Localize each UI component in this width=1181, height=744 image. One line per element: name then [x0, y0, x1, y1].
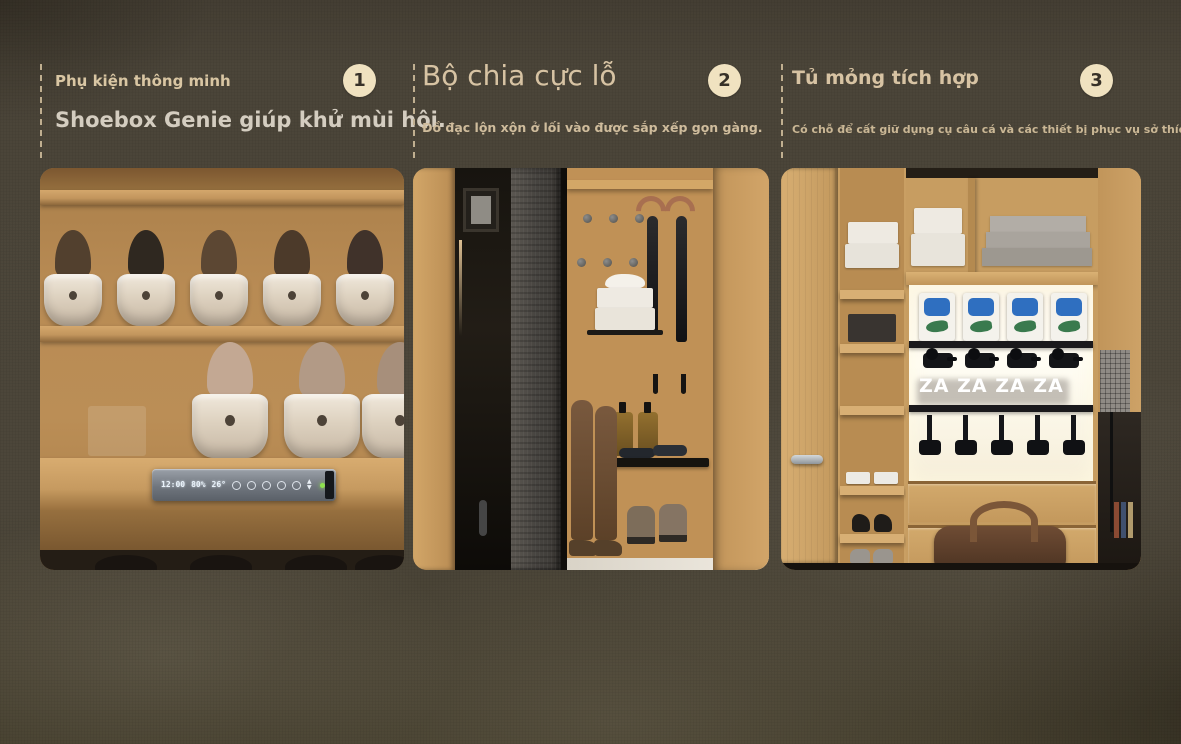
sneaker: [873, 549, 893, 563]
deodorizer-dome: [192, 394, 268, 458]
fishing-lure-box: [1051, 293, 1087, 341]
tool: [653, 445, 687, 456]
peg: [577, 258, 586, 267]
fishing-rod: [1110, 412, 1113, 532]
deodorizer-dome: [284, 394, 360, 458]
white-box: [595, 308, 655, 330]
rack-shelf: [840, 290, 904, 299]
deodorizer-dome: [117, 274, 175, 326]
dark-side-panel: [1098, 412, 1141, 563]
shelf-board: [906, 272, 1098, 285]
feature-1-number-badge: 1: [343, 64, 376, 97]
shelf-board: [40, 190, 404, 205]
white-box: [848, 222, 898, 244]
folded-slipper: [874, 472, 898, 484]
shoe: [128, 230, 164, 278]
peg: [609, 214, 618, 223]
za-overlay-text: ZA ZA ZA ZA: [919, 375, 1064, 397]
black-shelf: [909, 405, 1093, 412]
deodorizer-dome: [336, 274, 394, 326]
right-door-panel: [713, 168, 769, 570]
mode-icon: [277, 481, 286, 490]
vent-hole: [225, 415, 235, 426]
cabinet-door: [781, 168, 838, 563]
peg: [629, 258, 638, 267]
white-box: [914, 208, 962, 234]
feature-3-title: Tủ mỏng tích hợp: [792, 67, 979, 89]
cabinet-top-shadow: [40, 168, 404, 190]
fishing-reel-standing: [1025, 413, 1051, 455]
gray-sliding-panel: [511, 168, 561, 570]
gray-box: [982, 248, 1092, 266]
pegboard-closet-interior: [567, 168, 713, 558]
shoe: [55, 230, 91, 278]
arrow-buttons-icon: ▲ ▼: [307, 479, 314, 491]
feature-3-number-badge: 3: [1080, 64, 1113, 97]
bracket-shelf: [587, 330, 663, 335]
dashed-divider: [781, 64, 783, 162]
deodorizer-dome: [190, 274, 248, 326]
vent-hole: [361, 291, 369, 300]
deodorizer-dome: [44, 274, 102, 326]
photo-entry-closet-organizer: [413, 168, 769, 570]
feature-2-number-badge: 2: [708, 64, 741, 97]
tool: [619, 448, 655, 458]
promo-graphic: Phụ kiện thông minh 1 Shoebox Genie giúp…: [0, 0, 1181, 744]
shoe: [201, 230, 237, 278]
mode-icon: [232, 481, 241, 490]
photo-slim-hobby-cabinet: ZA ZA ZA ZA: [781, 168, 1141, 570]
vent-hole: [288, 291, 296, 300]
fishing-reel: [1007, 353, 1037, 368]
black-shelf: [909, 341, 1093, 348]
rack-shelf: [840, 534, 904, 543]
deodorizer-dome: [362, 394, 404, 458]
panel-time-display: 12:00: [161, 481, 185, 489]
framed-picture: [463, 188, 499, 232]
shoe: [347, 230, 383, 278]
feature-2-title: Bộ chia cực lỗ: [422, 59, 617, 92]
tall-boot: [571, 400, 593, 540]
white-box: [911, 234, 965, 266]
power-led: [320, 483, 325, 488]
vent-hole: [142, 291, 150, 300]
shoe-deodorizer: [263, 230, 321, 326]
fishing-reel-standing: [917, 413, 943, 455]
shoe-deodorizer: [362, 342, 404, 458]
fishing-reel-standing: [989, 413, 1015, 455]
mode-icon: [292, 481, 301, 490]
top-shelf-board: [567, 180, 713, 189]
black-heel-shoe: [852, 514, 870, 532]
dark-interior: [455, 168, 511, 570]
feature-2-subtitle: Đồ đạc lộn xộn ở lối vào được sắp xếp gọ…: [422, 120, 763, 135]
boot-foot: [594, 540, 622, 556]
dashed-divider: [413, 64, 415, 162]
gray-box: [990, 216, 1086, 232]
hiking-boot: [627, 506, 655, 544]
umbrella: [676, 216, 687, 342]
rack-shelf: [840, 406, 904, 415]
white-box: [597, 288, 653, 308]
book-spine: [1114, 502, 1119, 538]
black-heel-shoe: [874, 514, 892, 532]
main-cabinet: ZA ZA ZA ZA: [906, 168, 1098, 563]
shoe: [377, 342, 404, 398]
mode-icon: [247, 481, 256, 490]
fishing-lure-box: [919, 293, 955, 341]
shoe: [274, 230, 310, 278]
cabinet-right-side: [1098, 168, 1141, 563]
feature-1-subtitle: Shoebox Genie giúp khử mùi hôi.: [55, 108, 446, 132]
shoe-deodorizer: [190, 230, 248, 326]
fishing-reel-standing: [953, 413, 979, 455]
fishing-reel-standing: [1061, 413, 1087, 455]
lower-wood-band: [40, 510, 404, 550]
vent-hole: [395, 415, 404, 426]
shoe-row-top: [40, 230, 404, 326]
book-spine: [1121, 502, 1126, 538]
shoe-deodorizer: [192, 342, 268, 458]
panel-texture: [511, 168, 561, 570]
cabinet-top-shadow: [906, 168, 1098, 178]
hiking-boot: [659, 504, 687, 542]
door-handle: [479, 500, 487, 536]
fishing-reel: [965, 353, 995, 368]
shoe-deodorizer: [284, 342, 360, 458]
feature-3-header: Tủ mỏng tích hợp 3 Có chỗ để cất giữ dụn…: [781, 62, 1141, 166]
fishing-reel: [1049, 353, 1079, 368]
book-spine: [1128, 502, 1133, 538]
shoe: [299, 342, 345, 398]
feature-3-subtitle: Có chỗ để cất giữ dụng cụ câu cá và các …: [792, 123, 1181, 136]
feature-1-title: Phụ kiện thông minh: [55, 72, 231, 90]
fishing-lure-box: [963, 293, 999, 341]
rack-shelf: [840, 344, 904, 353]
left-door-panel: [413, 168, 455, 570]
door-lever-handle: [791, 455, 823, 464]
mode-icon: [262, 481, 271, 490]
white-box: [845, 244, 899, 268]
pullout-shoe-rack: [840, 168, 904, 563]
peg: [583, 214, 592, 223]
fishing-lure-box: [1007, 293, 1043, 341]
photo-shoe-deodorizer-cabinet: 12:00 80% 26° ▲ ▼: [40, 168, 404, 570]
feature-2-header: Bộ chia cực lỗ 2 Đồ đạc lộn xộn ở lối và…: [413, 62, 769, 166]
vent-hole: [215, 291, 223, 300]
light-strip: [459, 240, 462, 336]
vent-hole: [69, 291, 77, 300]
shoe-deodorizer: [336, 230, 394, 326]
deodorizer-control-panel: 12:00 80% 26° ▲ ▼: [152, 469, 336, 501]
shoe-row-middle: [40, 342, 404, 458]
dark-floor-strip: [781, 563, 1141, 570]
deodorizer-dome: [263, 274, 321, 326]
shoe: [207, 342, 253, 398]
panel-end-cap: [325, 471, 334, 499]
shelf-board: [40, 326, 404, 342]
dark-storage-box: [848, 314, 896, 342]
boot-foot: [569, 540, 597, 556]
rack-shelf: [840, 486, 904, 495]
vent-hole: [317, 415, 327, 426]
panel-temperature-display: 26°: [212, 481, 226, 489]
peg: [603, 258, 612, 267]
fishing-reel: [923, 353, 953, 368]
picture: [471, 196, 491, 224]
wall-hook: [653, 374, 658, 394]
backlit-display-niche: ZA ZA ZA ZA: [909, 285, 1093, 481]
folded-slipper: [846, 472, 870, 484]
feature-1-header: Phụ kiện thông minh 1 Shoebox Genie giúp…: [40, 62, 404, 166]
dashed-divider: [40, 64, 42, 162]
gray-box: [986, 232, 1090, 248]
vertical-divider: [968, 178, 975, 275]
shoe-deodorizer: [117, 230, 175, 326]
tall-boot: [595, 406, 617, 540]
wall-hook: [681, 374, 686, 394]
panel-humidity-display: 80%: [191, 481, 205, 489]
shoe-deodorizer: [44, 230, 102, 326]
tool-shelf: [607, 458, 709, 467]
wood-grain: [781, 168, 838, 563]
sneaker: [850, 549, 870, 563]
